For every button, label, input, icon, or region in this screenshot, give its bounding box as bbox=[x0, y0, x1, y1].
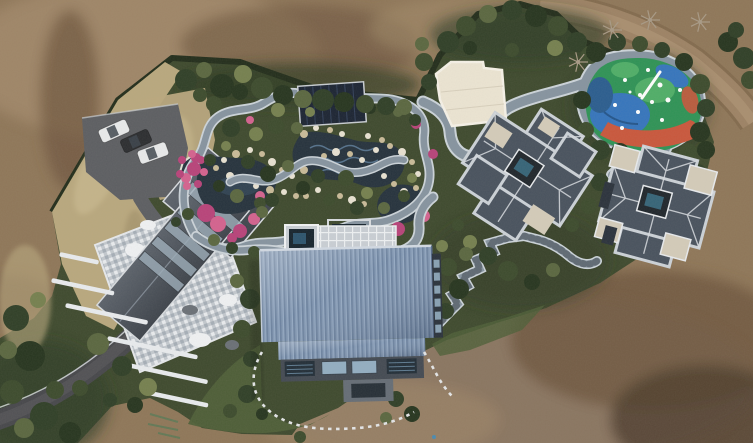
aerial-photo-canvas bbox=[0, 0, 753, 443]
aerial-photo bbox=[0, 0, 753, 443]
grain-overlay bbox=[0, 0, 753, 443]
